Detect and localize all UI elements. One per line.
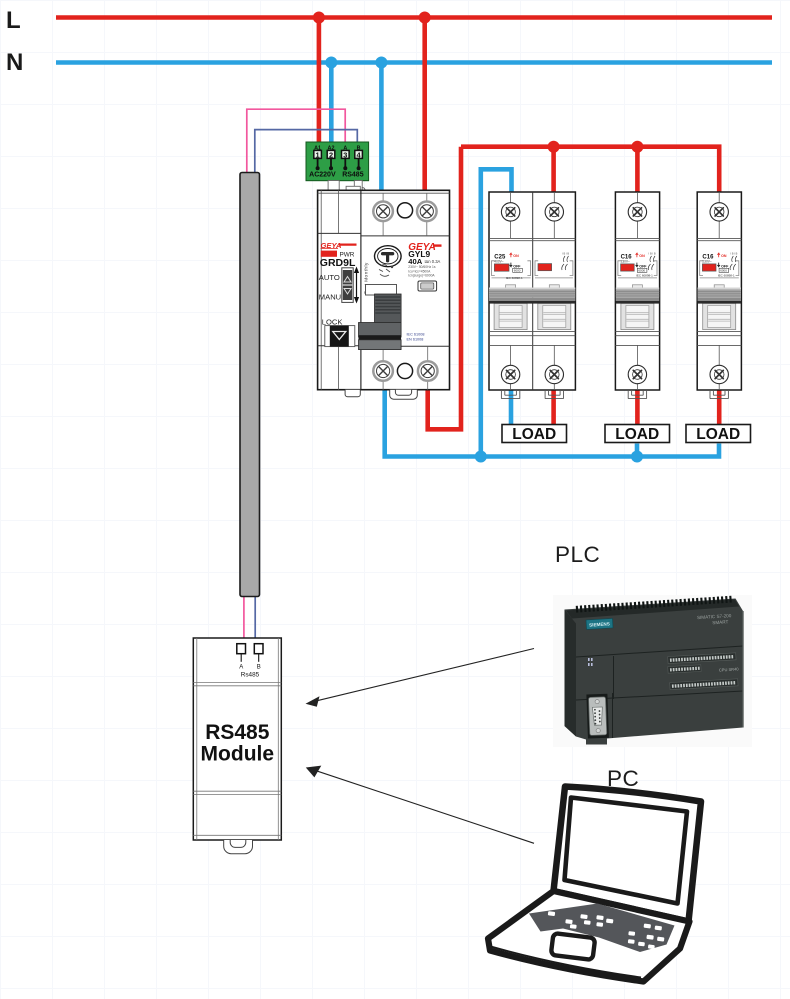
svg-text:6000: 6000 [514, 269, 521, 273]
svg-text:N: N [6, 49, 23, 76]
svg-text:SMART: SMART [712, 619, 728, 625]
svg-text:IEC 60898-1: IEC 60898-1 [636, 273, 653, 277]
svg-text:LOAD: LOAD [615, 426, 659, 443]
svg-text:6000: 6000 [638, 269, 645, 273]
svg-text:IEC 61008: IEC 61008 [407, 332, 425, 336]
svg-text:RS485: RS485 [342, 172, 364, 179]
svg-text:IEC 60898-1: IEC 60898-1 [506, 276, 523, 280]
svg-text:PLC: PLC [555, 542, 600, 567]
svg-text:400V~: 400V~ [494, 260, 503, 264]
svg-text:A: A [239, 665, 243, 671]
svg-text:3: 3 [343, 151, 347, 160]
svg-text:LOAD: LOAD [512, 426, 556, 443]
svg-text:ON: ON [513, 254, 519, 258]
svg-text:LOCK: LOCK [322, 317, 343, 326]
svg-text:MANU: MANU [319, 293, 341, 302]
svg-text:AUTO: AUTO [319, 273, 340, 282]
svg-text:B: B [257, 665, 261, 671]
svg-text:EN 61008: EN 61008 [407, 338, 424, 342]
svg-text:230V~: 230V~ [621, 260, 630, 264]
svg-text:L: L [6, 7, 21, 34]
svg-text:1: 1 [316, 151, 320, 160]
svg-text:LOAD: LOAD [696, 426, 740, 443]
svg-text:Module: Module [201, 743, 275, 766]
svg-text:RS485: RS485 [205, 721, 270, 744]
svg-text:2: 2 [329, 151, 333, 160]
svg-text:ON: ON [639, 254, 645, 258]
svg-text:Icn(surge)=6000A: Icn(surge)=6000A [408, 274, 435, 278]
svg-text:Rs485: Rs485 [241, 672, 260, 679]
svg-text:AC220V: AC220V [309, 172, 336, 179]
svg-text:GRD9L: GRD9L [320, 257, 356, 269]
svg-text:I∆n 0.3A: I∆n 0.3A [425, 259, 441, 264]
